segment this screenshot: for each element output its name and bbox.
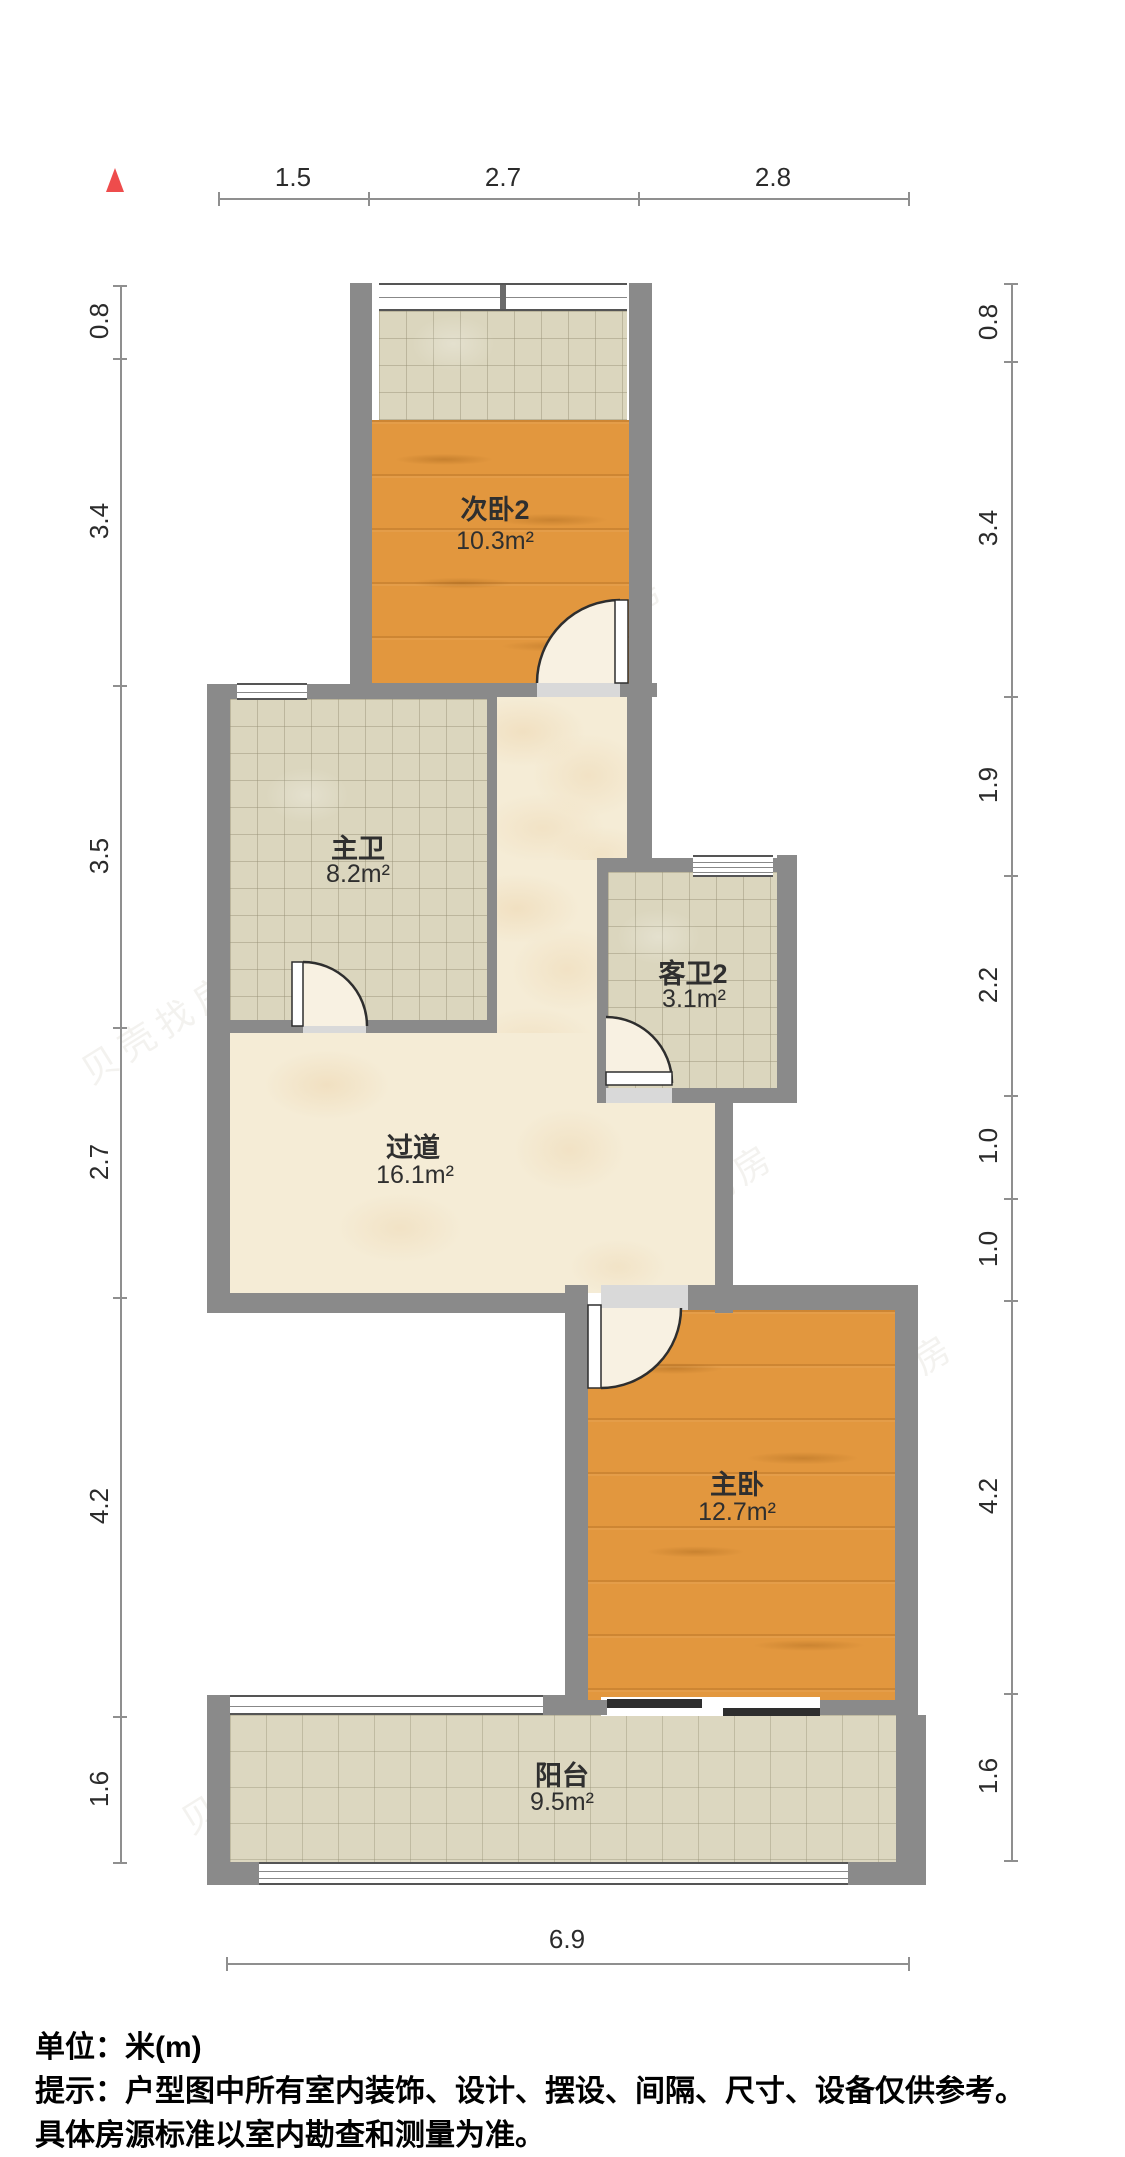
corridor-label: 过道 bbox=[323, 1126, 503, 1165]
dim-left-3: 3.5 bbox=[84, 826, 114, 886]
dim-right-1: 0.8 bbox=[973, 292, 1003, 352]
dim-tick bbox=[1004, 1198, 1018, 1200]
dim-tick bbox=[1004, 1095, 1018, 1097]
wall-segment bbox=[672, 1088, 797, 1103]
dim-tick bbox=[1004, 696, 1018, 698]
bay-window-mullion bbox=[500, 285, 506, 309]
corridor-area: 16.1m² bbox=[325, 1161, 505, 1190]
guest-bath-door bbox=[596, 1008, 682, 1094]
dim-tick bbox=[1004, 1300, 1018, 1302]
bay-window bbox=[379, 283, 627, 311]
dim-left-5: 4.2 bbox=[84, 1476, 114, 1536]
dim-tick bbox=[113, 1716, 127, 1718]
wall-segment bbox=[207, 684, 230, 1313]
dim-top-1: 1.5 bbox=[253, 162, 333, 192]
dim-tick bbox=[113, 1297, 127, 1299]
sliding-door-panel bbox=[723, 1708, 820, 1716]
dim-top-3: 2.8 bbox=[733, 162, 813, 192]
dim-right-6: 1.0 bbox=[973, 1219, 1003, 1279]
dim-tick bbox=[113, 358, 127, 360]
dim-right-5: 1.0 bbox=[973, 1116, 1003, 1176]
dim-left-4: 2.7 bbox=[84, 1132, 114, 1192]
disclaimer-line1: 提示：户型图中所有室内装饰、设计、摆设、间隔、尺寸、设备仅供参考。 bbox=[35, 2066, 1025, 2110]
balcony-area: 9.5m² bbox=[472, 1788, 652, 1817]
dim-tick bbox=[113, 1862, 127, 1864]
dim-right-7: 4.2 bbox=[973, 1466, 1003, 1526]
bedroom2-area: 10.3m² bbox=[405, 527, 585, 556]
dim-tick bbox=[908, 1957, 910, 1971]
dim-left-2: 3.4 bbox=[84, 491, 114, 551]
wall-segment bbox=[848, 1862, 926, 1885]
wall-segment bbox=[350, 683, 537, 697]
dim-tick bbox=[1004, 283, 1018, 285]
wall-segment bbox=[366, 1020, 497, 1033]
sliding-door-panel bbox=[607, 1699, 702, 1708]
wall-segment bbox=[207, 1862, 259, 1885]
wall-segment bbox=[487, 697, 497, 1033]
dim-tick bbox=[368, 192, 370, 206]
dim-tick bbox=[1004, 1860, 1018, 1862]
dimension-line-left bbox=[120, 285, 122, 1864]
bay-window-floor bbox=[379, 311, 627, 420]
dim-left-6: 1.6 bbox=[84, 1759, 114, 1819]
dim-right-8: 1.6 bbox=[973, 1746, 1003, 1806]
wall-segment bbox=[207, 1695, 230, 1885]
unit-note: 单位：米(m) bbox=[35, 2022, 202, 2066]
balcony-side-window bbox=[230, 1695, 543, 1715]
guest-bath-area: 3.1m² bbox=[604, 985, 784, 1014]
disclaimer-line2: 具体房源标准以室内勘查和测量为准。 bbox=[35, 2110, 545, 2154]
wall-segment bbox=[543, 1695, 565, 1715]
wall-segment bbox=[627, 697, 652, 860]
dim-tick bbox=[908, 192, 910, 206]
dim-left-1: 0.8 bbox=[84, 291, 114, 351]
dimension-line-bottom bbox=[226, 1963, 908, 1965]
dim-tick bbox=[1004, 1693, 1018, 1695]
wall-segment bbox=[597, 858, 693, 872]
dim-bottom-1: 6.9 bbox=[527, 1924, 607, 1954]
wall-segment bbox=[350, 283, 372, 697]
dimension-line-right bbox=[1011, 283, 1013, 1860]
master-bath-door bbox=[288, 953, 380, 1038]
wall-segment bbox=[895, 1285, 918, 1715]
room-corridor-floor-upper bbox=[497, 697, 627, 872]
dim-tick bbox=[113, 685, 127, 687]
dim-tick bbox=[638, 192, 640, 206]
dim-tick bbox=[1004, 875, 1018, 877]
wall-segment bbox=[688, 1285, 918, 1310]
floorplan-canvas: 贝壳找房 贝壳找房 贝壳找房 贝壳找房 贝壳找房 bbox=[0, 0, 1125, 2157]
wall-segment bbox=[896, 1715, 926, 1885]
dim-right-2: 3.4 bbox=[973, 498, 1003, 558]
dim-tick bbox=[113, 1027, 127, 1029]
dim-tick bbox=[218, 192, 220, 206]
bedroom2-label: 次卧2 bbox=[405, 488, 585, 527]
wall-segment bbox=[207, 1293, 588, 1313]
north-arrow-icon bbox=[106, 168, 124, 192]
dim-tick bbox=[113, 285, 127, 287]
wall-segment bbox=[715, 1103, 733, 1313]
dimension-line-top bbox=[218, 198, 910, 200]
dim-tick bbox=[226, 1957, 228, 1971]
guest-bath-window bbox=[693, 855, 773, 877]
dim-right-3: 1.9 bbox=[973, 755, 1003, 815]
wall-segment bbox=[820, 1700, 895, 1715]
master-bath-window bbox=[237, 683, 307, 700]
wall-segment bbox=[588, 1700, 607, 1715]
bedroom2-door bbox=[530, 595, 640, 700]
master-bedroom-door bbox=[583, 1298, 690, 1398]
master-bedroom-area: 12.7m² bbox=[647, 1498, 827, 1527]
dim-tick bbox=[1004, 361, 1018, 363]
balcony-window bbox=[259, 1862, 848, 1885]
master-bath-area: 8.2m² bbox=[268, 860, 448, 889]
master-bedroom-label: 主卧 bbox=[647, 1463, 827, 1502]
dim-top-2: 2.7 bbox=[463, 162, 543, 192]
dim-right-4: 2.2 bbox=[973, 955, 1003, 1015]
